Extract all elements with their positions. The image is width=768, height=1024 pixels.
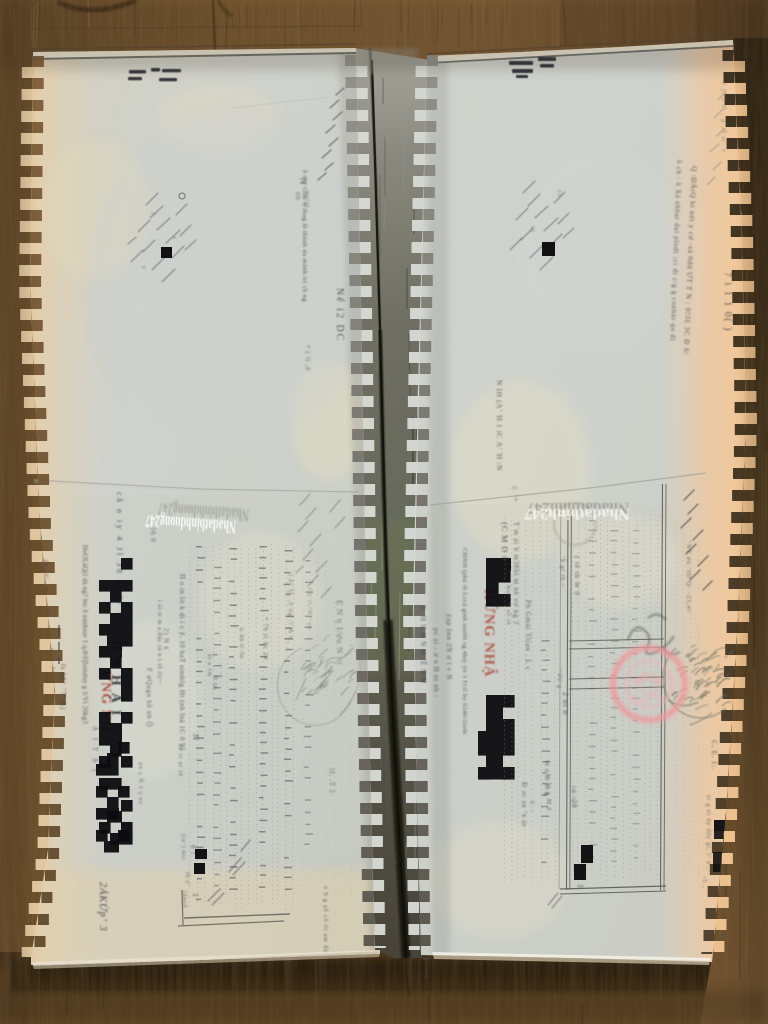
svg-text:masi m aô in: masi m aô in (505, 585, 511, 625)
svg-text:ʼᵀdỤ̄ g: ʼᵀdỤ̄ g (556, 668, 562, 689)
svg-text:2) N s̄: 2) N s̄ (162, 628, 170, 650)
svg-text:uc ic ar in: uc ic ar in (177, 744, 183, 777)
svg-text:2 ni n: 2 ni n (561, 692, 570, 715)
svg-text:1: 1 (191, 893, 200, 898)
svg-text:38: 38 (570, 800, 578, 809)
svg-text:Ẹ N η Ị/ưu N hì: Ẹ N η Ị/ưu N hì (335, 600, 345, 665)
svg-text:* ( ìì ,d: * ( ìì ,d (304, 345, 311, 371)
svg-text:ai g ni dp dây gi, iʼ n ,·: ai g ni dp dây gi, iʼ n ,· (705, 795, 712, 873)
svg-text:ắt a 1m: ắt a 1m (206, 654, 213, 677)
svg-text:C, E. 1:.: C, E. 1:. (710, 740, 718, 770)
svg-text:N: N (191, 734, 201, 741)
svg-text:7 ì 1 1 0( ): 7 ì 1 1 0( ) (722, 272, 733, 332)
svg-text:CĐNH (phả ởi Lccả ginh nuười s: CĐNH (phả ởi Lccả ginh nuười sg 4hiy ỷn … (461, 548, 468, 736)
svg-text:Nhadatbinh247: Nhadatbinh247 (524, 505, 630, 522)
svg-text:2: 2 (150, 212, 155, 215)
svg-text:N ỊH (Λʼ Ή 1 iC Λʼ Ή :N: N ỊH (Λʼ Ή 1 iC Λʼ Ή :N (495, 380, 504, 471)
svg-text:L ân ii 5n: L ân ii 5n (238, 628, 244, 659)
svg-text:ĩs ỊẠʼ ʼ7ʼ Xj: ĩs ỊẠʼ ʼ7ʼ Xj (59, 663, 67, 710)
svg-text:th ẹʼ: th ẹʼ (184, 872, 190, 887)
svg-text:)Ị, ,T 2.: )Ị, ,T 2. (328, 768, 336, 796)
svg-text:ồ ú v Giác n thag ất thành ưa: ồ ú v Giác n thag ất thành ưa mảnh trí c… (301, 170, 308, 302)
svg-text:(iaʼ) nic: (iaʼ) nic (180, 834, 187, 860)
svg-text:Π o in lit k di i c ỹ, 10 haT: Π o in lit k di i c ỹ, 10 haT sindılg Ht… (178, 574, 186, 751)
svg-text:23: 23 (556, 190, 562, 197)
svg-text:( iê th ⅳ 0: ( iê th ⅳ 0 (573, 556, 582, 596)
svg-text:ụn ç Ñ s̄ ç ns: ụn ç Ñ s̄ ç ns (137, 762, 145, 805)
svg-text:HoOLàQ(ỉ dà ng? htc ề nánhsọr: HoOLàQ(ỉ dà ng? htc ề nánhsọr 1 q;8/ề]ls… (81, 545, 88, 724)
svg-text:í ái tr m a;8ặc tá n t tô ỏ): í ái tr m a;8ặc tá n t tô ỏ) ̶ ̶ (156, 600, 163, 684)
svg-text:-5 ,: -5 , (701, 876, 708, 888)
svg-text:CỤ t¹,³N ʼ çü: CỤ t¹,³N ʼ çü (306, 588, 312, 630)
svg-text:9: 9 (140, 266, 145, 269)
svg-text:ỷ ỷ, s̄ m̄ , g ,Λ ωʼ s: ỷ ỷ, s̄ m̄ , g ,Λ ωʼ s (720, 81, 729, 152)
svg-text:(ẩnγ0: (ẩnγ0 (181, 891, 188, 908)
svg-text:Ŋb: Ŋb (294, 192, 300, 201)
svg-text:ʼΝT ưu ʼІD Q- -23,4^: ʼΝT ưu ʼІD Q- -23,4^ (685, 541, 692, 613)
svg-text:T: :: T: : (528, 800, 535, 812)
svg-text:X. H U H N H ʼÊ N M: X. H U H N H ʼÊ N M (419, 605, 427, 684)
svg-text:50: 50 (529, 226, 534, 233)
svg-text:2. ʼ*: 2. ʼ* (511, 486, 518, 502)
svg-text:4: 4 (171, 236, 176, 239)
svg-text:Đ ɔc эu ʼn ár: Đ ɔc эu ʼn ár (520, 782, 527, 827)
svg-text:1: 1 (576, 884, 586, 889)
svg-text:ị ây Ự, ,0 ng :? m̄ t.,: ị ây Ự, ,0 ng :? m̄ t., (287, 574, 294, 644)
svg-text:F ưQugn hề nh Ộ: F ưQugn hề nh Ộ (145, 668, 153, 728)
svg-text:2ÁKỬpʼ 3: 2ÁKỬpʼ 3 (97, 882, 109, 932)
svg-text:0 in: 0 in (211, 676, 219, 690)
svg-text:Nế í2 DC: Nế í2 DC (334, 288, 345, 342)
svg-text:pc ai - ư o H nt nh :: pc ai - ư o H nt nh : (432, 628, 439, 698)
svg-text:ýạp Ịин 2N ư ĩ v N: ýạp Ịин 2N ư ĩ v N (445, 614, 452, 680)
svg-text:ie bi g Ⅺ ê: ie bi g Ⅺ ê (545, 774, 552, 811)
svg-text:* 7h tí ức 24: * 7h tí ức 24 (262, 617, 269, 660)
